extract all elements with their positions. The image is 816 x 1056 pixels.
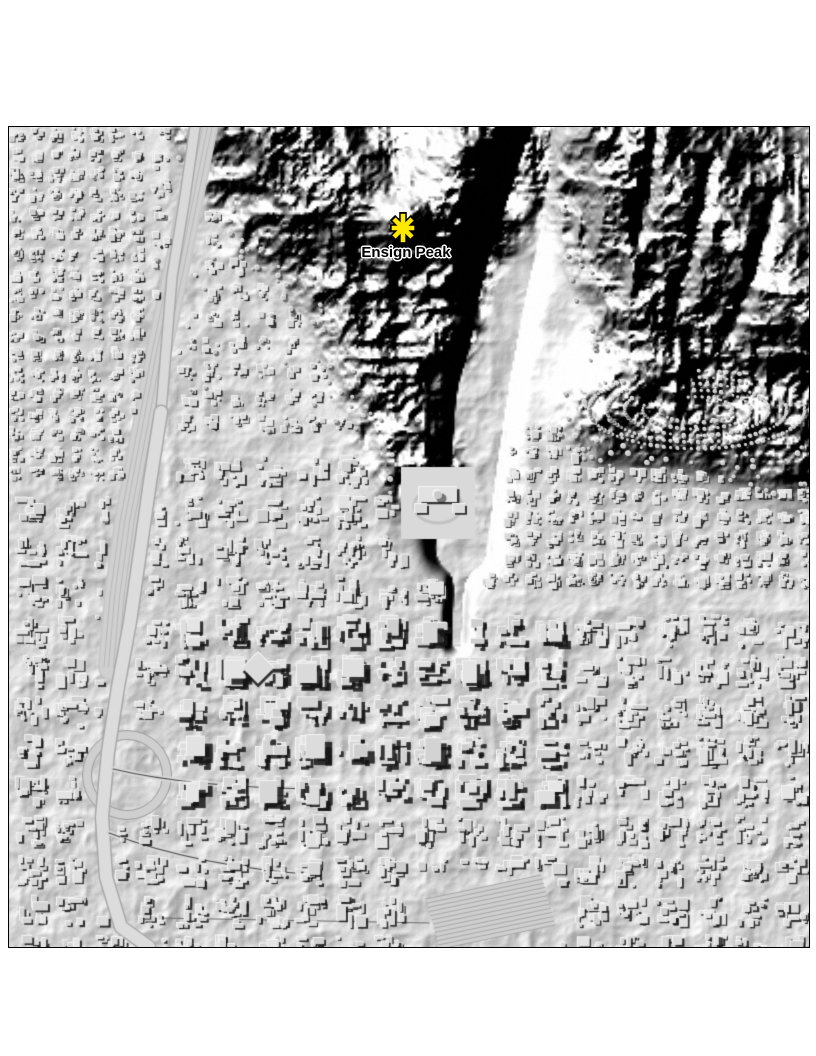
hillshade-map: Ensign Peak <box>8 126 810 948</box>
ensign-peak-label: Ensign Peak <box>361 245 450 260</box>
page: Ensign Peak <box>0 0 816 1056</box>
